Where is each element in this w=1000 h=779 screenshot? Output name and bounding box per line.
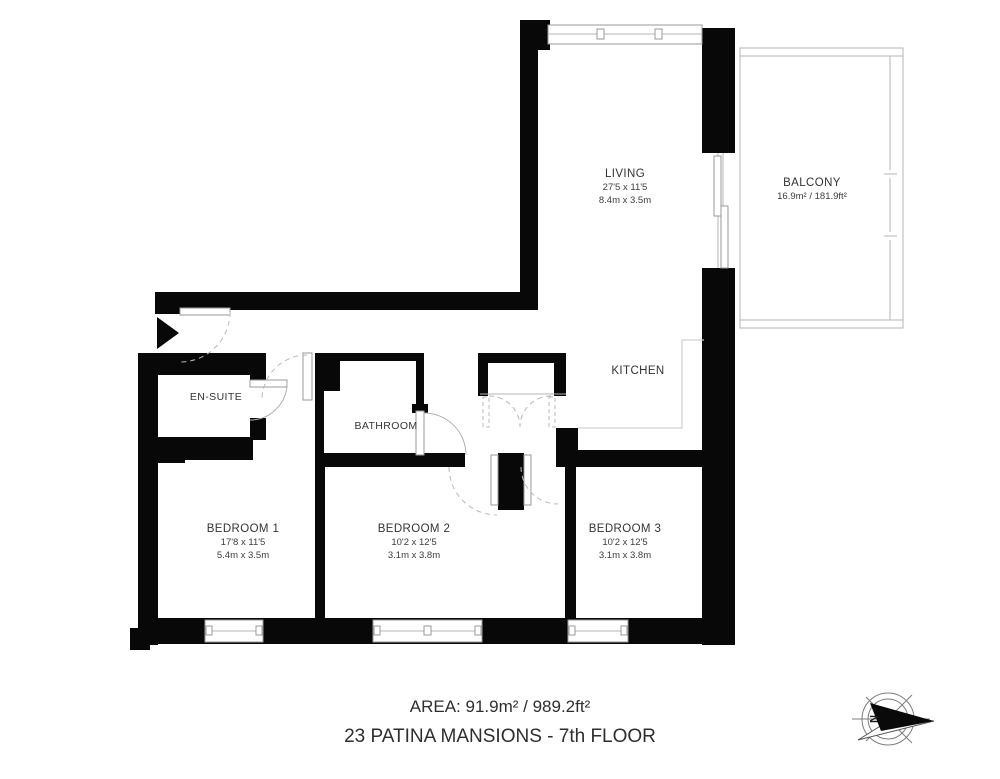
- footer-title-text: 23 PATINA MANSIONS - 7th FLOOR: [344, 726, 656, 747]
- window-bedroom2: [373, 620, 482, 642]
- entry-arrow-icon: [157, 317, 179, 349]
- wall-entry-top: [155, 292, 538, 310]
- bedroom3-label: BEDROOM 3: [589, 523, 662, 535]
- wall-left-outer: [138, 355, 158, 645]
- kitchen-label: KITCHEN: [611, 365, 664, 377]
- footer-area-text: AREA: 91.9m² / 989.2ft²: [410, 697, 591, 716]
- compass-icon: N: [852, 693, 934, 745]
- bedroom1-label: BEDROOM 1: [207, 523, 280, 535]
- wall-kitchen-bottom: [556, 450, 706, 467]
- bedroom2-label: BEDROOM 2: [378, 523, 451, 535]
- compass-north-label: N: [867, 715, 879, 723]
- window-bedroom1: [205, 620, 263, 642]
- kitchen-counter-outline: [578, 340, 704, 428]
- bedroom3-door: [521, 455, 558, 505]
- living-dim-metric: 8.4m x 3.5m: [599, 195, 651, 206]
- wall-bathroom-top: [315, 353, 424, 361]
- balcony-sliding-door: [702, 153, 735, 268]
- balcony-area: 16.9m² / 181.9ft²: [777, 191, 847, 202]
- closet-bifold-doors: [480, 394, 566, 427]
- ensuite-door: [250, 380, 287, 420]
- balcony-railing: [884, 56, 897, 320]
- wall-ensuite-right-stub: [250, 418, 266, 440]
- window-bedroom3: [568, 620, 628, 642]
- wall-entry-top-cap: [155, 292, 183, 314]
- bathroom-door: [416, 411, 466, 455]
- bedroom3-dim-imperial: 10'2 x 12'5: [602, 537, 647, 548]
- bedroom3-dim-metric: 3.1m x 3.8m: [599, 550, 651, 561]
- wall-ensuite-top: [138, 353, 252, 375]
- window-living: [548, 25, 702, 44]
- living-dim-imperial: 27'5 x 11'5: [603, 182, 648, 193]
- wall-living-topright: [702, 28, 735, 153]
- wall-closet-right: [554, 353, 566, 396]
- wall-closet-top: [478, 353, 566, 363]
- wall-right-main: [702, 268, 735, 645]
- wall-bed1-bed2-divider: [315, 453, 325, 618]
- floorplan-page: LIVING 27'5 x 11'5 8.4m x 3.5m BALCONY 1…: [0, 0, 1000, 779]
- wall-bathroom-right: [416, 353, 424, 407]
- wall-bottom-left-foot: [130, 628, 150, 650]
- bedroom1-door: [262, 353, 312, 400]
- wall-bathroom-bottom: [315, 453, 465, 467]
- footer: AREA: 91.9m² / 989.2ft² 23 PATINA MANSIO…: [344, 697, 656, 747]
- bedroom2-dim-metric: 3.1m x 3.8m: [388, 550, 440, 561]
- bedroom2-dim-imperial: 10'2 x 12'5: [391, 537, 436, 548]
- balcony-label: BALCONY: [783, 177, 841, 189]
- wall-bathroom-left: [315, 390, 324, 453]
- ensuite-label: EN-SUITE: [190, 391, 242, 403]
- bathroom-label: BATHROOM: [354, 420, 417, 432]
- wall-ensuite-step: [150, 437, 185, 463]
- wall-bed3-left: [565, 465, 576, 618]
- bedroom1-dim-metric: 5.4m x 3.5m: [217, 550, 269, 561]
- wall-living-left: [520, 20, 538, 310]
- living-label: LIVING: [605, 168, 645, 180]
- wall-ensuite-door-post: [250, 353, 266, 380]
- wall-bed2-bed3-stub: [498, 453, 524, 510]
- bedroom1-dim-imperial: 17'8 x 11'5: [221, 537, 266, 548]
- floorplan-drawing: LIVING 27'5 x 11'5 8.4m x 3.5m BALCONY 1…: [0, 0, 1000, 779]
